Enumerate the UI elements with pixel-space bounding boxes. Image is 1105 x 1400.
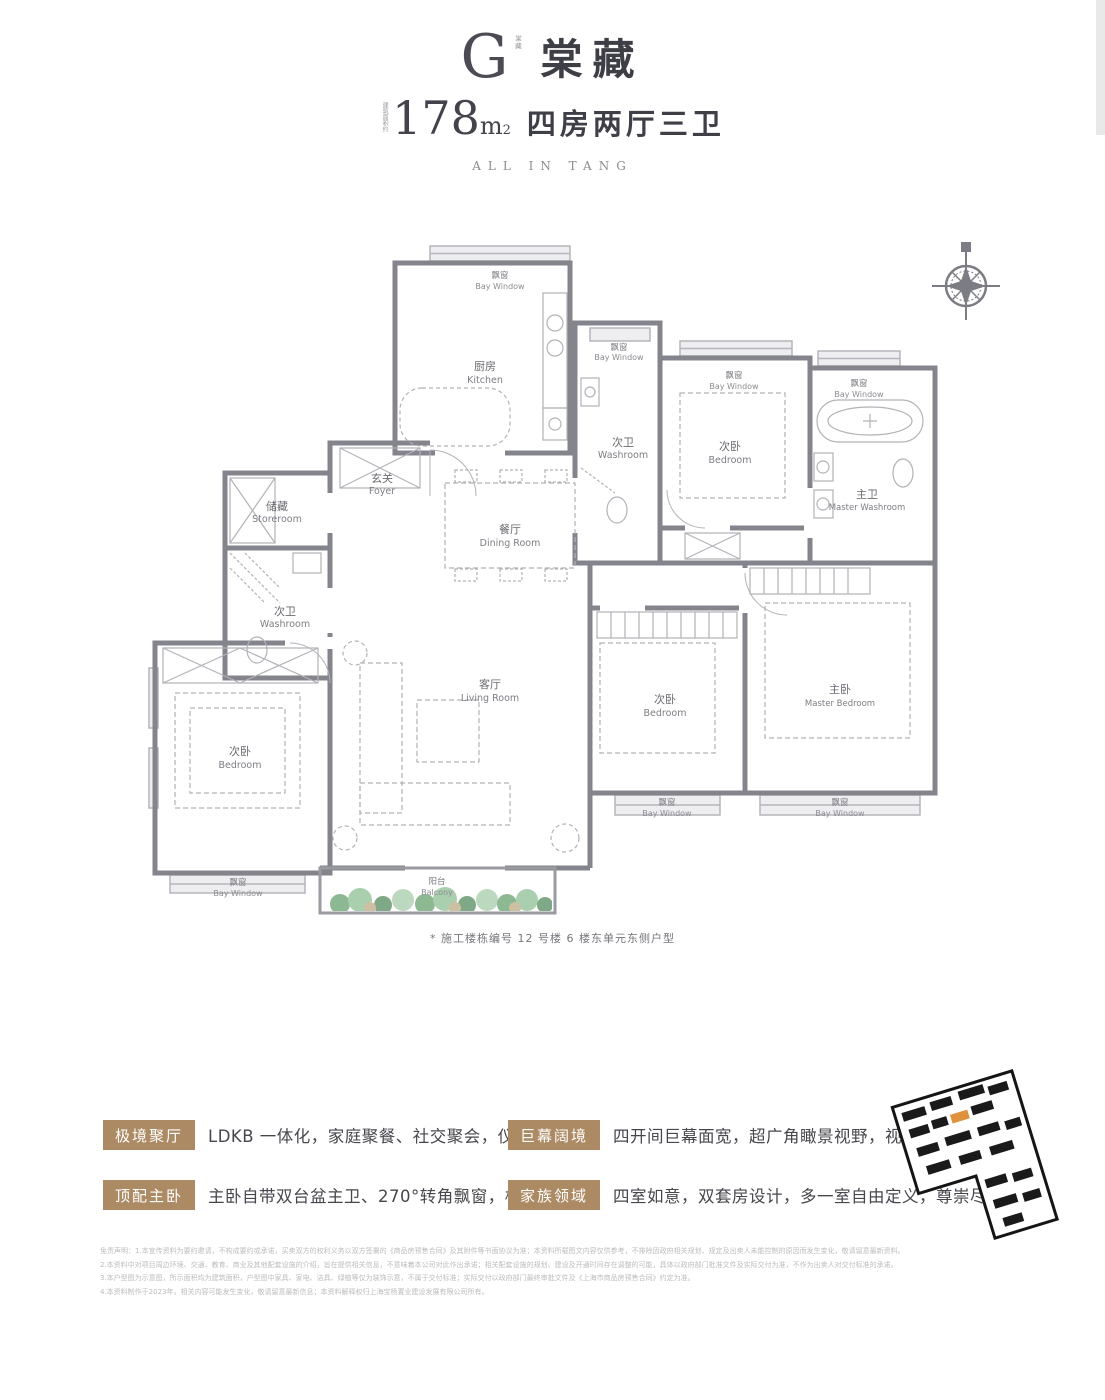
room-label-kitchen-cn: 厨房 [474,360,496,373]
room-label-masterbedroom-en: Master Bedroom [805,699,875,709]
windows-layer [149,246,920,893]
feature-tag-family: 家族领域 [508,1180,600,1210]
area-row: 建筑面积约 178 m 2 四房两厅三卫 [380,95,725,143]
room-label-baywindow-bottomcenter-en: Bay Window [642,809,692,818]
area-superscript: 2 [503,123,511,138]
room-label-baywindow-bedroom2-cn: 飘窗 [725,370,742,381]
disclaimer-line-4: 4.本资料制作于2023年，相关内容可能发生变化，敬请留意最新信息；本资料解释权… [100,1286,1010,1300]
subtitle-en: ALL IN TANG [472,159,633,173]
logo-letter: G [461,27,509,87]
room-label-balcony-en: Balcony [421,888,453,897]
feature-tag-master: 顶配主卧 [103,1180,195,1210]
room-label-masterwashroom-en: Master Washroom [829,503,906,513]
siteplan-map [885,1056,1065,1256]
room-label-baywindow-bottomcenter-cn: 飘窗 [658,797,675,808]
room-label-washroom-left-cn: 次卫 [274,604,296,618]
room-label-balcony-cn: 阳台 [428,876,445,887]
room-label-washroom-left-en: Washroom [260,619,310,630]
room-label-storeroom-en: Storeroom [252,514,302,525]
disclaimer-line-3: 3.本户型图为示意图，所示面积均为建筑面积，户型图中家具、家电、洁具、绿植等仅为… [100,1272,1010,1286]
area-prefix-label: 建筑面积约 [380,102,389,136]
room-label-foyer-en: Foyer [369,486,395,497]
room-label-bedroom-bottommid-en: Bedroom [644,708,687,719]
floorplan-note: * 施工楼栋编号 12 号楼 6 楼东单元东侧户型 [0,930,1105,946]
feature-master: 顶配主卧 主卧自带双台盆主卫、270°转角飘窗，极尽排场 [103,1180,573,1210]
area-unit: m [480,112,503,140]
room-label-baywindow-top-cn: 飘窗 [491,270,508,281]
room-label-dining-cn: 餐厅 [499,522,521,536]
room-label-baywindow-left-en: Bay Window [213,889,263,898]
room-label-storeroom-cn: 储藏 [266,499,288,513]
room-label-masterbedroom-cn: 主卧 [829,683,851,696]
brand-name: 棠藏 [536,26,644,87]
compass-icon [925,240,1005,330]
area-number: 178 [392,95,480,141]
door-gaps-layer [285,446,816,649]
room-label-dining-en: Dining Room [480,538,541,549]
header: G 棠藏 棠藏 建筑面积约 178 m 2 四房两厅三卫 ALL IN TANG [0,26,1105,173]
room-label-washroom-top-cn: 次卫 [612,435,634,449]
room-label-baywindow-masterwash-en: Bay Window [834,390,884,399]
logo-row: G 棠藏 棠藏 [461,26,645,87]
room-label-baywindow-top-en: Bay Window [475,282,525,291]
disclaimer: 免责声明：1.本宣传资料为要约邀请，不构成要约或承诺，买卖双方的权利义务以双方签… [100,1245,1010,1299]
room-label-baywindow-bottomright-en: Bay Window [815,809,865,818]
disclaimer-line-2: 2.本资料中对项目周边环境、交通、教育、商业及其他配套设施的介绍，旨在提供相关信… [100,1259,1010,1273]
room-label-living-cn: 客厅 [479,677,501,691]
room-label-living-en: Living Room [461,693,519,704]
room-label-foyer-cn: 玄关 [371,471,393,485]
room-label-bedroom-bottommid-cn: 次卧 [654,692,676,706]
floorplan-drawing: 飘窗 Bay Window 厨房 Kitchen 飘窗 Bay Window 次… [145,238,965,938]
feature-tag-view: 巨幕阔境 [508,1120,600,1150]
room-label-baywindow-corridor-cn: 飘窗 [610,342,627,353]
layout-text: 四房两厅三卫 [527,101,725,143]
room-label-bedroom-left-en: Bedroom [219,760,262,771]
room-label-baywindow-corridor-en: Bay Window [594,353,644,362]
disclaimer-line-1: 免责声明：1.本宣传资料为要约邀请，不构成要约或承诺，买卖双方的权利义务以双方签… [100,1245,1010,1259]
room-label-bedroom-upperright-en: Bedroom [709,455,752,466]
floorplan-poster-page: G 棠藏 棠藏 建筑面积约 178 m 2 四房两厅三卫 ALL IN TANG [0,0,1105,1400]
room-label-kitchen-en: Kitchen [467,375,503,386]
room-label-bedroom-upperright-cn: 次卧 [719,439,741,453]
room-label-masterwashroom-cn: 主卫 [856,488,878,501]
feature-tag-living: 极境聚厅 [103,1120,195,1150]
room-label-baywindow-masterwash-cn: 飘窗 [850,378,867,389]
room-label-bedroom-left-cn: 次卧 [229,744,251,758]
floorplan: 飘窗 Bay Window 厨房 Kitchen 飘窗 Bay Window 次… [145,238,965,938]
room-label-washroom-top-en: Washroom [598,450,648,461]
room-label-baywindow-bottomright-cn: 飘窗 [831,797,848,808]
room-label-baywindow-bedroom2-en: Bay Window [709,382,759,391]
logo-vertical-mark: 棠藏 [512,35,522,79]
room-label-baywindow-left-cn: 飘窗 [229,877,246,888]
